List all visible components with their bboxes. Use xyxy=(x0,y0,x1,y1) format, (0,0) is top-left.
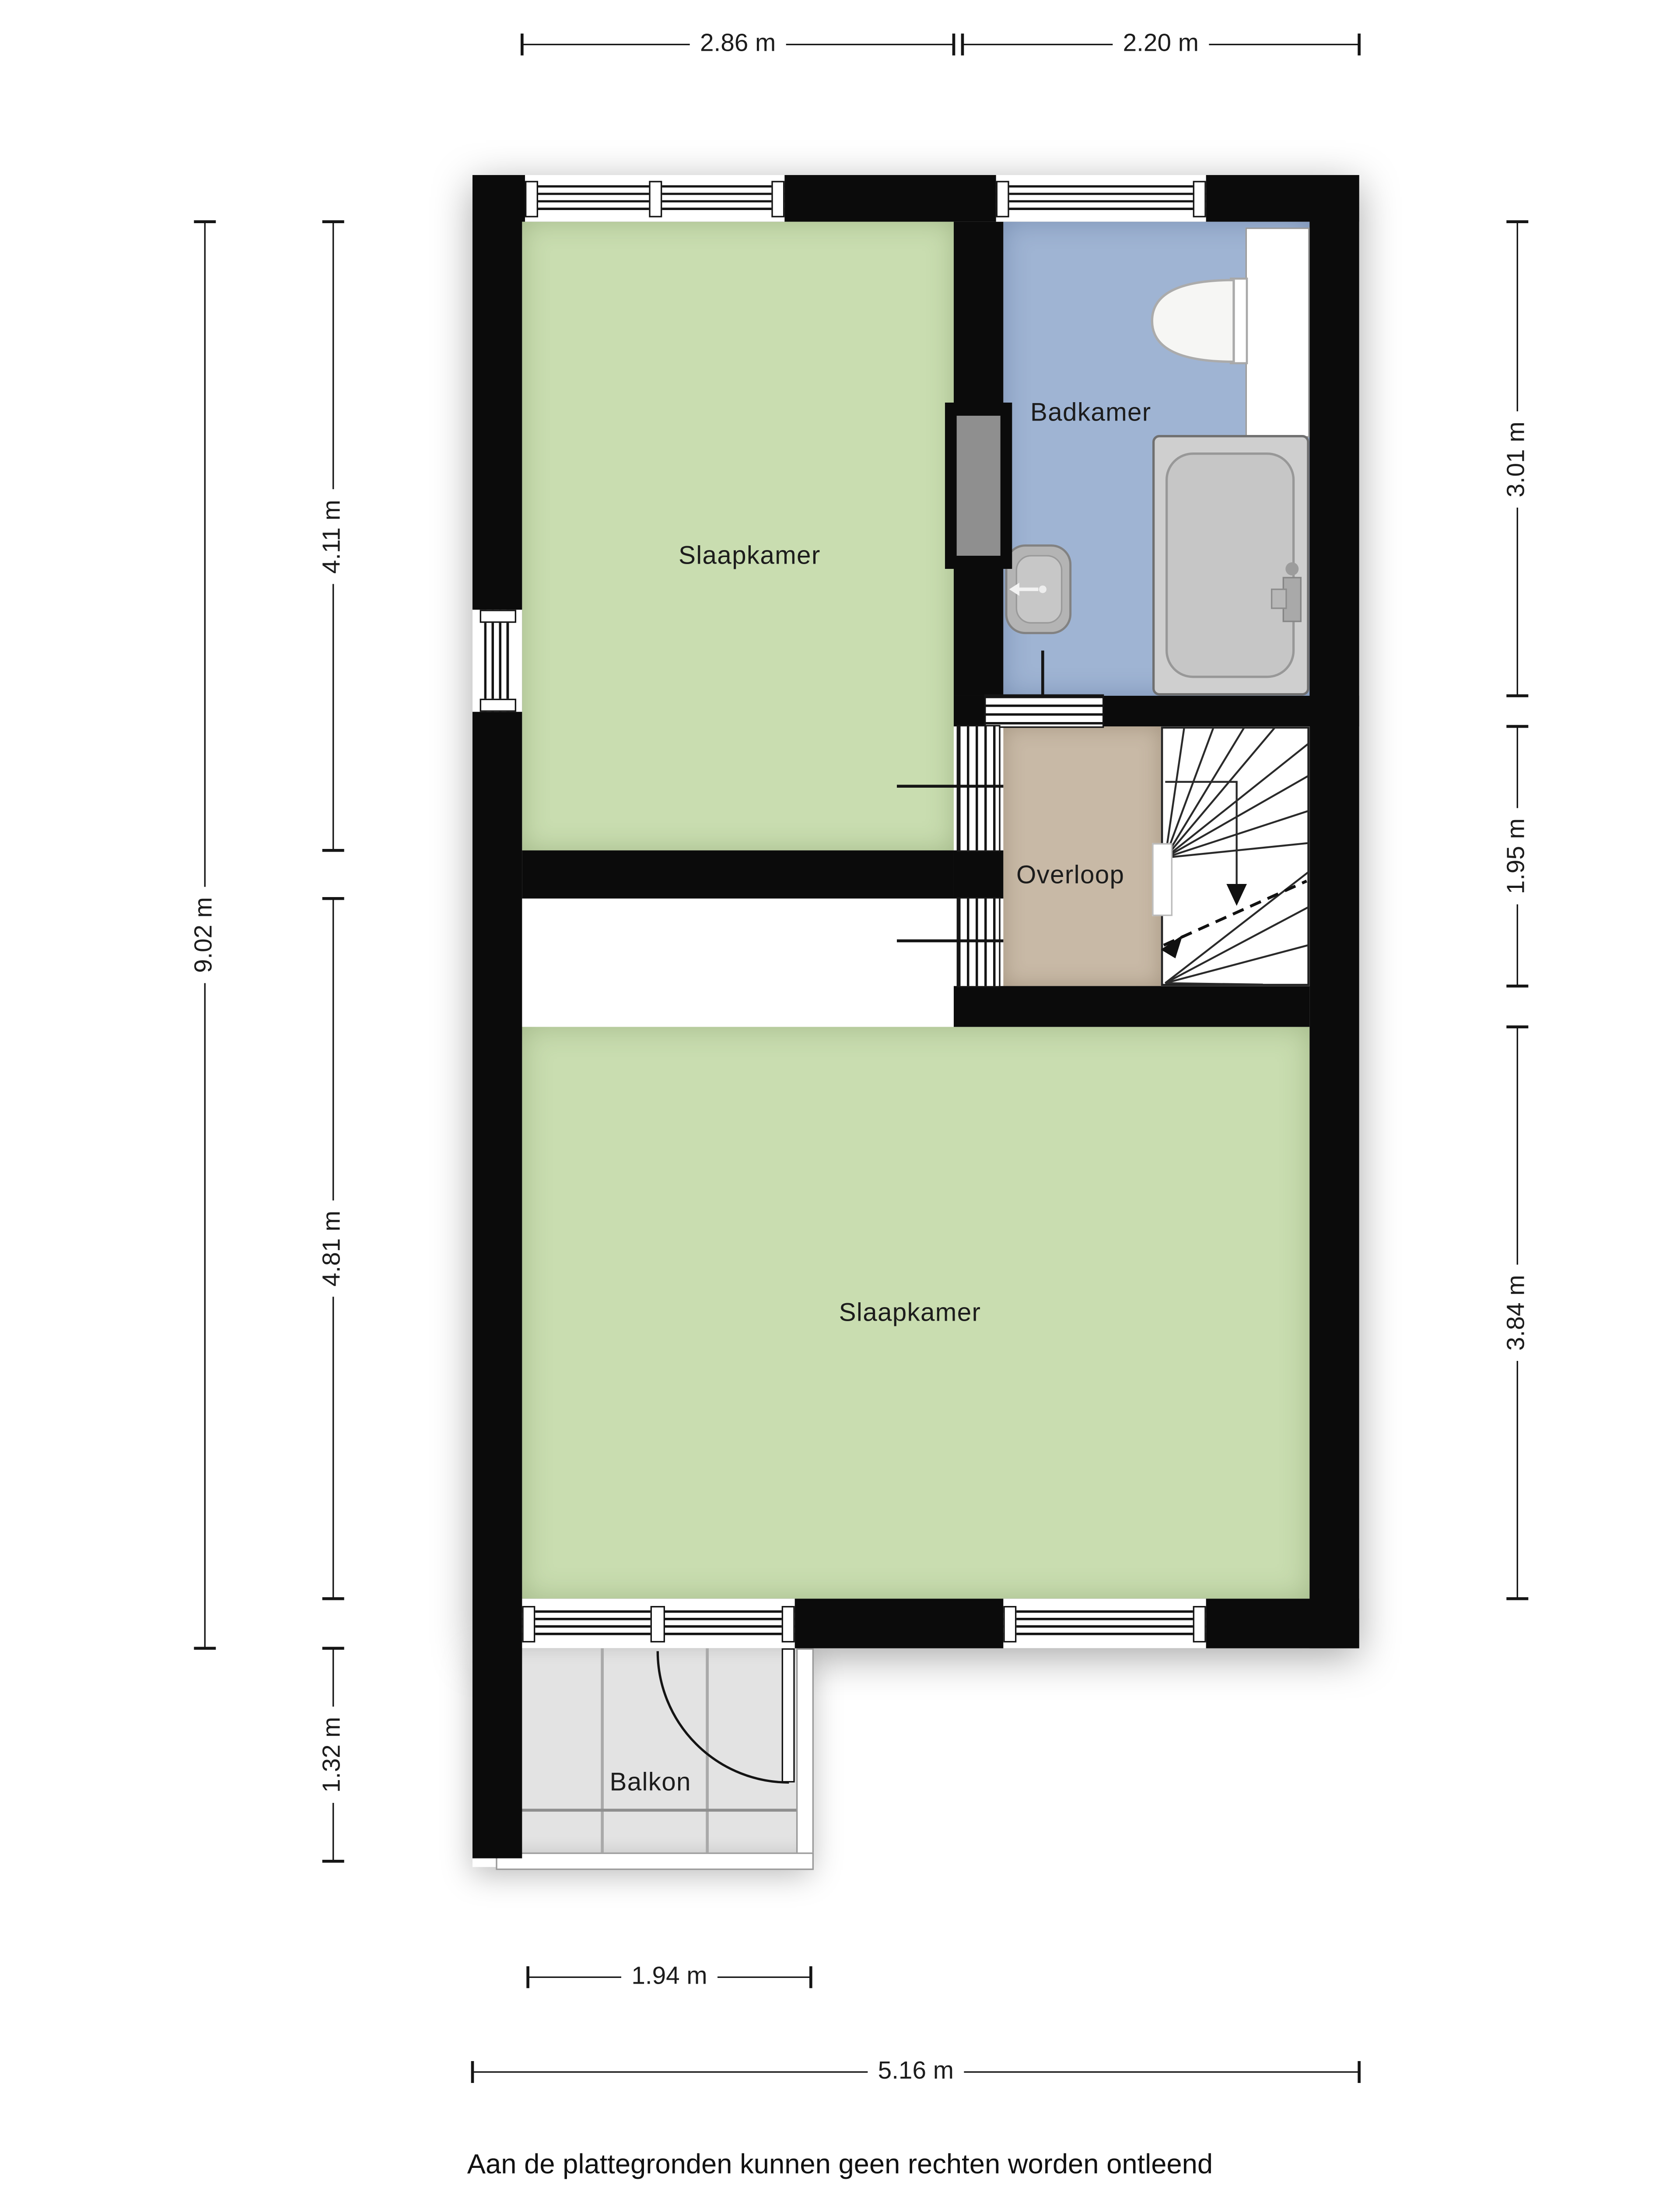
window-mullion xyxy=(649,181,662,217)
radiator-niche-inner xyxy=(957,416,1001,556)
window-cap xyxy=(1193,181,1206,217)
window-cap xyxy=(996,181,1009,217)
dimension-label: 4.11 m xyxy=(317,489,349,583)
closet xyxy=(1246,228,1310,438)
dimension-bottom-outer: 5.16 m xyxy=(472,2071,1359,2072)
dimension-left-lower: 4.81 m xyxy=(332,898,334,1599)
dimension-label: 3.01 m xyxy=(1501,410,1533,507)
window-cap xyxy=(1003,1606,1016,1642)
radiator-niche xyxy=(945,403,1012,569)
window-cap xyxy=(525,181,538,217)
room-label-landing: Overloop xyxy=(1016,860,1124,891)
bathroom-door xyxy=(986,696,1102,726)
dimension-label: 5.16 m xyxy=(868,2055,964,2087)
room-landing-floor xyxy=(1003,726,1161,986)
balcony-railing-bottom xyxy=(496,1852,814,1870)
dimension-top-right: 2.20 m xyxy=(962,44,1359,45)
window-bottom-bedroom xyxy=(1003,1599,1206,1648)
dimension-label: 3.84 m xyxy=(1501,1265,1533,1361)
sink-icon xyxy=(1003,543,1076,636)
window-cap xyxy=(480,699,516,712)
window-glazing xyxy=(1003,1610,1206,1635)
floor-plan: Slaapkamer Badkamer Overloop Slaapkamer … xyxy=(0,0,1680,2188)
dimension-bottom-balcony: 1.94 m xyxy=(528,1977,811,1978)
dimension-label: 2.20 m xyxy=(1113,28,1209,60)
dimension-left-balcony: 1.32 m xyxy=(332,1648,334,1862)
window-cap xyxy=(771,181,784,217)
room-label-bedroom-bottom: Slaapkamer xyxy=(839,1297,981,1328)
window-top-bathroom xyxy=(996,175,1206,222)
window-cap xyxy=(1193,1606,1206,1642)
bedroom-top-door xyxy=(958,726,999,850)
room-label-balcony: Balkon xyxy=(609,1767,691,1798)
room-bedroom-top-floor xyxy=(522,222,954,851)
dimension-label: 9.02 m xyxy=(189,887,220,983)
balcony-tile-line-v1 xyxy=(601,1648,603,1853)
dimension-right-lower: 3.84 m xyxy=(1517,1027,1518,1599)
dimension-label: 1.94 m xyxy=(621,1961,717,1993)
toilet-icon xyxy=(1149,271,1254,371)
window-glazing xyxy=(996,185,1206,210)
dimension-label: 1.95 m xyxy=(1501,808,1533,905)
dimension-right-middle: 1.95 m xyxy=(1517,726,1518,986)
wall-bedroom-divider xyxy=(522,850,954,898)
dimension-label: 2.86 m xyxy=(690,28,786,60)
bathtub-icon xyxy=(1152,435,1309,696)
window-cap xyxy=(522,1606,535,1642)
window-cap xyxy=(480,610,516,623)
dimension-top-left: 2.86 m xyxy=(522,44,954,45)
dimension-left-outer: 9.02 m xyxy=(204,222,206,1648)
room-label-bedroom-top: Slaapkamer xyxy=(679,540,821,571)
wall-right xyxy=(1309,175,1359,1648)
window-top-bedroom xyxy=(525,175,784,222)
window-left-bedroom xyxy=(472,610,522,712)
wall-landing-bottom xyxy=(954,986,1309,1027)
bedroom-bottom-door xyxy=(958,898,999,986)
window-glazing xyxy=(484,610,509,712)
dimension-right-upper: 3.01 m xyxy=(1517,222,1518,696)
bedroom-bottom-door-leaf xyxy=(897,940,1003,942)
stairs-landing-jamb xyxy=(1152,843,1172,916)
balcony-tile-line-h1 xyxy=(496,1809,811,1811)
wall-landing-left-stub xyxy=(954,850,1003,898)
page: Slaapkamer Badkamer Overloop Slaapkamer … xyxy=(0,0,1680,2188)
dimension-label: 4.81 m xyxy=(317,1200,349,1297)
dimension-left-upper: 4.11 m xyxy=(332,222,334,851)
footer-disclaimer: Aan de plattegronden kunnen geen rechten… xyxy=(0,2150,1680,2182)
room-label-bathroom: Badkamer xyxy=(1030,397,1151,428)
stairs-icon xyxy=(1161,726,1309,986)
bedroom-top-door-leaf xyxy=(897,785,1003,787)
dimension-label: 1.32 m xyxy=(317,1707,349,1803)
bathroom-door-leaf xyxy=(1041,651,1043,696)
